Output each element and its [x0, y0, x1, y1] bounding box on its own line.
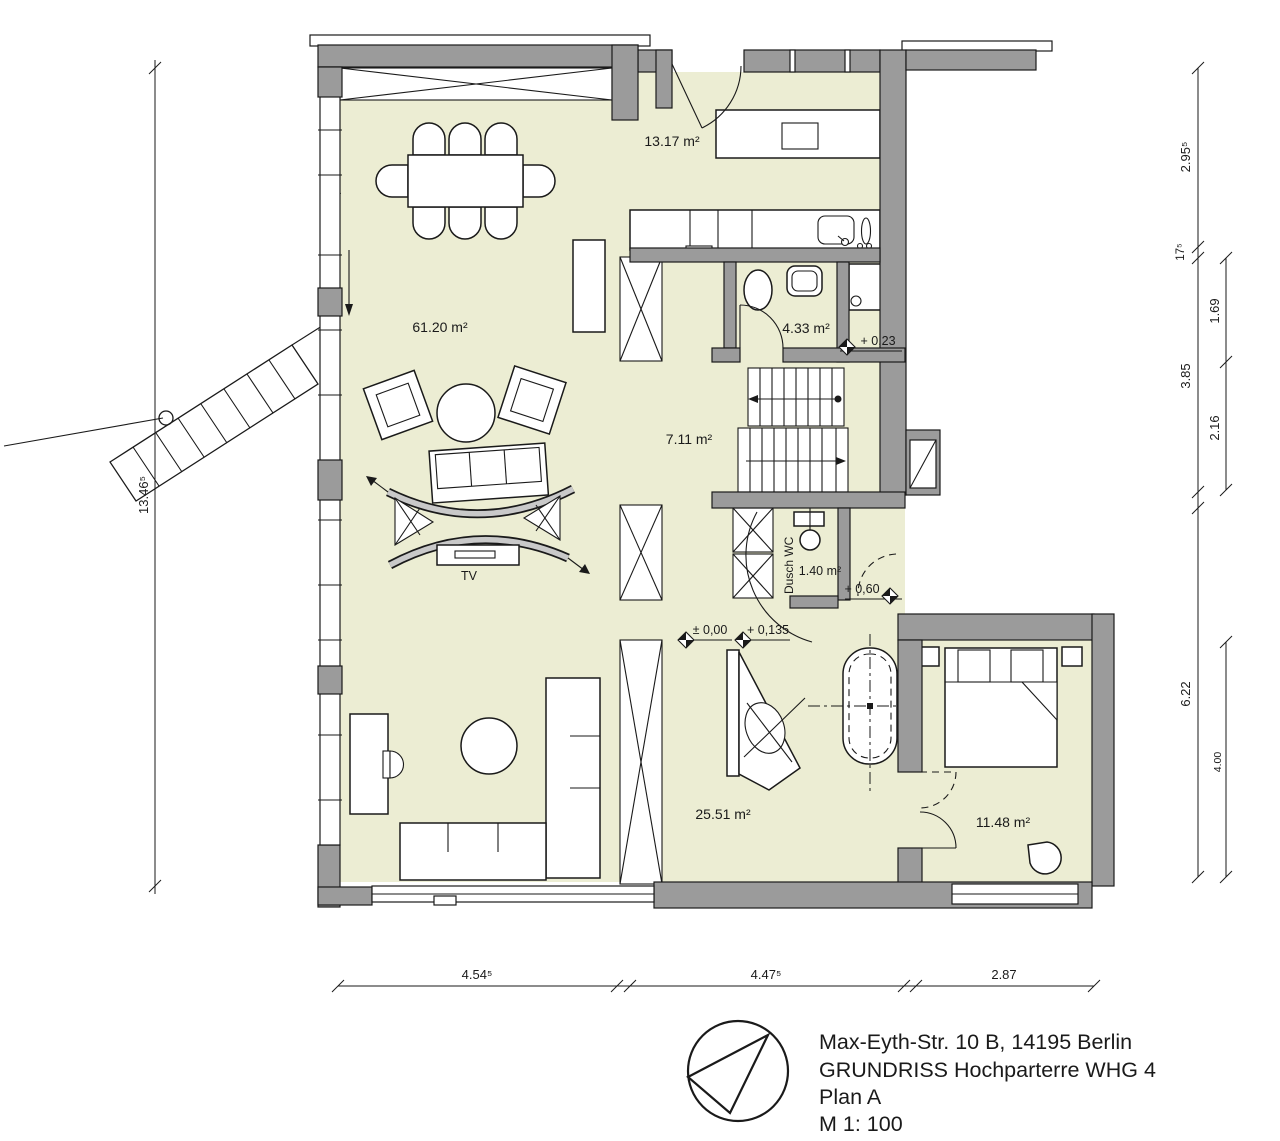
double-bed	[945, 648, 1057, 767]
dim-inner-1: 1.69	[1207, 298, 1222, 323]
room-label-shower-wc-area: 1.40 m²	[799, 564, 841, 578]
dim-inner-2: 2.16	[1207, 415, 1222, 440]
drainer	[862, 218, 871, 244]
dim-chain-right-outer: 2.95⁵ 17⁵ 3.85 6.22	[1175, 62, 1204, 883]
dim-right-2: 17⁵	[1175, 243, 1187, 261]
kitchen-island	[716, 110, 880, 158]
dining-chair	[485, 207, 517, 239]
dim-right-1: 2.95⁵	[1178, 142, 1193, 173]
dim-bottom-1: 4.54⁵	[462, 967, 493, 982]
kitchen-counter	[630, 210, 880, 250]
shaft-lower	[620, 640, 662, 884]
level-value-bath: + 0,135	[747, 623, 789, 637]
floor-plan-drawing: TV	[0, 0, 1280, 1141]
level-value-landing: + 0,60	[844, 582, 879, 596]
dim-right-4: 6.22	[1178, 681, 1193, 706]
dim-left-total: 13.46⁵	[136, 476, 151, 514]
room-label-hall: 7.11 m²	[666, 431, 713, 447]
title-block: Max-Eyth-Str. 10 B, 14195 Berlin GRUNDRI…	[688, 1021, 1156, 1136]
dining-chair	[449, 207, 481, 239]
interior-staircase	[738, 368, 848, 492]
shaft-upper	[620, 257, 662, 361]
dim-right-3: 3.85	[1178, 363, 1193, 388]
dining-chair	[523, 165, 555, 197]
room-label-shower-wc-name: Dusch WC	[782, 536, 796, 594]
room-label-wc: 4.33 m²	[782, 320, 830, 336]
dining-chair	[413, 123, 445, 155]
sideboard	[573, 240, 605, 332]
kitchen-sink	[818, 216, 854, 244]
pillow	[958, 650, 990, 682]
toilet	[744, 270, 772, 310]
dining-table	[408, 155, 523, 207]
room-label-kitchen: 13.17 m²	[644, 133, 700, 149]
dining-chair	[376, 165, 408, 197]
closet-top-living	[340, 68, 612, 100]
dim-chain-right-inner: 1.69 2.16 4.00	[1207, 252, 1232, 883]
desk	[350, 714, 388, 814]
nightstand-right	[1062, 647, 1082, 666]
shower-screen	[727, 650, 739, 776]
pillow	[1011, 650, 1043, 682]
exterior-staircase	[4, 326, 322, 501]
title-plan: Plan A	[819, 1085, 882, 1109]
tv-device	[455, 551, 495, 558]
dining-chair	[485, 123, 517, 155]
round-table	[461, 718, 517, 774]
room-label-bath: 25.51 m²	[695, 806, 751, 822]
title-scale: M 1: 100	[819, 1112, 903, 1136]
dim-chain-bottom: 4.54⁵ 4.47⁵ 2.87	[332, 967, 1100, 992]
coffee-table	[437, 384, 495, 442]
title-drawing: GRUNDRISS Hochparterre WHG 4	[819, 1058, 1156, 1082]
north-arrow-icon	[688, 1021, 788, 1121]
shaft-middle	[620, 505, 662, 600]
floor-plan-page: TV	[0, 0, 1280, 1141]
shower-wc-toilet	[800, 530, 820, 550]
closet-shower-wc-1	[733, 508, 773, 552]
dim-bottom-2: 4.47⁵	[751, 967, 782, 982]
level-value-entry: + 0,23	[860, 334, 895, 348]
title-address: Max-Eyth-Str. 10 B, 14195 Berlin	[819, 1030, 1132, 1054]
dining-chair	[449, 123, 481, 155]
dim-inner-3: 4.00	[1212, 752, 1224, 773]
tv-label: TV	[461, 569, 478, 583]
level-value-ground: ± 0,00	[693, 623, 728, 637]
dining-chair	[413, 207, 445, 239]
sofa	[429, 443, 548, 503]
room-label-bedroom: 11.48 m²	[976, 814, 1031, 830]
corner-chair	[1028, 842, 1061, 874]
room-label-living: 61.20 m²	[412, 319, 468, 335]
dim-bottom-3: 2.87	[991, 967, 1016, 982]
shower-wc-basin	[794, 512, 824, 526]
